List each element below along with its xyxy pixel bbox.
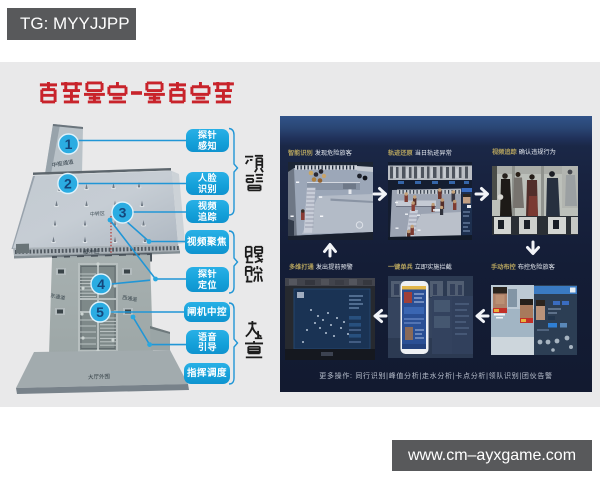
- svg-text:4: 4: [97, 276, 105, 292]
- svg-text:2: 2: [64, 176, 72, 192]
- svg-text:3: 3: [119, 205, 127, 221]
- svg-text:5: 5: [96, 304, 104, 320]
- svg-text:中转区: 中转区: [90, 210, 105, 218]
- svg-text:1: 1: [65, 136, 73, 152]
